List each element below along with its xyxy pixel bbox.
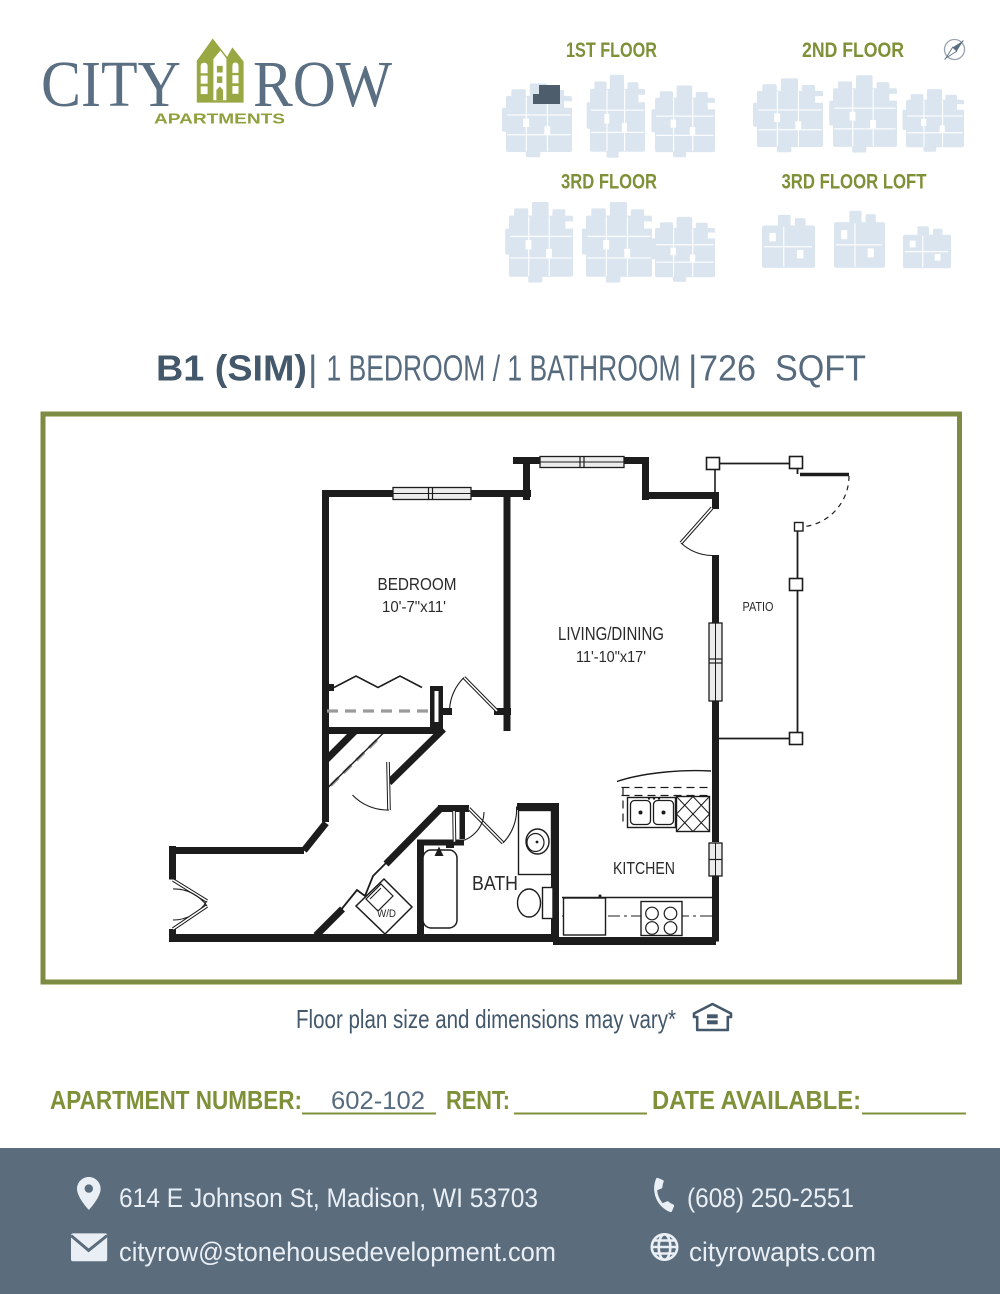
svg-text:KITCHEN: KITCHEN xyxy=(613,858,675,878)
svg-text:10'-7"x11': 10'-7"x11' xyxy=(382,599,446,616)
svg-text:3RD FLOOR: 3RD FLOOR xyxy=(561,171,657,194)
svg-text:1ST FLOOR: 1ST FLOOR xyxy=(566,39,657,62)
svg-text:Floor plan size and dimensions: Floor plan size and dimensions may vary* xyxy=(296,1004,676,1034)
svg-text:W/D: W/D xyxy=(377,908,396,920)
svg-text:cityrow@stonehousedevelopment.: cityrow@stonehousedevelopment.com xyxy=(119,1237,556,1267)
svg-text:PATIO: PATIO xyxy=(743,600,774,614)
svg-text:APARTMENT NUMBER:: APARTMENT NUMBER: xyxy=(50,1085,302,1115)
svg-text:APARTMENTS: APARTMENTS xyxy=(154,111,285,128)
svg-text:3RD FLOOR LOFT: 3RD FLOOR LOFT xyxy=(782,171,927,194)
svg-text:602-102: 602-102 xyxy=(331,1087,425,1115)
svg-text:BEDROOM: BEDROOM xyxy=(378,574,457,594)
svg-text:B1 (SIM)|1 BEDROOM / 1 BATHROO: B1 (SIM)|1 BEDROOM / 1 BATHROOM|726 SQFT xyxy=(156,348,866,389)
svg-text:11'-10"x17': 11'-10"x17' xyxy=(576,649,646,666)
svg-text:RENT:: RENT: xyxy=(446,1085,510,1115)
svg-text:BATH: BATH xyxy=(472,873,518,895)
svg-text:cityrowapts.com: cityrowapts.com xyxy=(689,1237,876,1267)
svg-text:DATE AVAILABLE:: DATE AVAILABLE: xyxy=(652,1085,861,1115)
svg-text:(608) 250-2551: (608) 250-2551 xyxy=(687,1183,854,1213)
svg-text:LIVING/DINING: LIVING/DINING xyxy=(558,624,664,644)
svg-text:614 E Johnson St, Madison, WI: 614 E Johnson St, Madison, WI 53703 xyxy=(119,1183,538,1213)
svg-text:2ND FLOOR: 2ND FLOOR xyxy=(802,39,904,62)
